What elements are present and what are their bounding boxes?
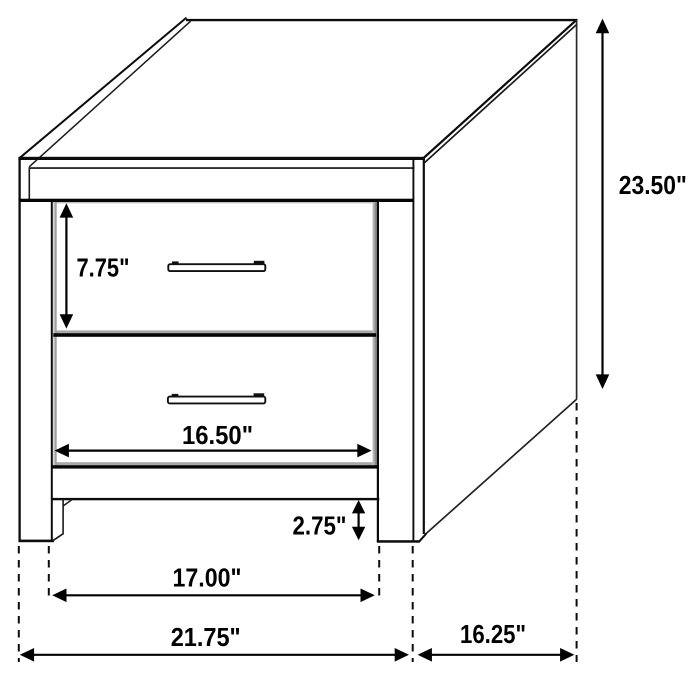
svg-text:21.75": 21.75"	[171, 624, 241, 652]
svg-text:7.75": 7.75"	[77, 254, 130, 282]
svg-text:16.50": 16.50"	[182, 422, 253, 450]
svg-text:23.50": 23.50"	[619, 172, 687, 200]
svg-text:16.25": 16.25"	[460, 621, 526, 649]
svg-text:2.75": 2.75"	[293, 512, 347, 540]
svg-text:17.00": 17.00"	[173, 564, 242, 592]
